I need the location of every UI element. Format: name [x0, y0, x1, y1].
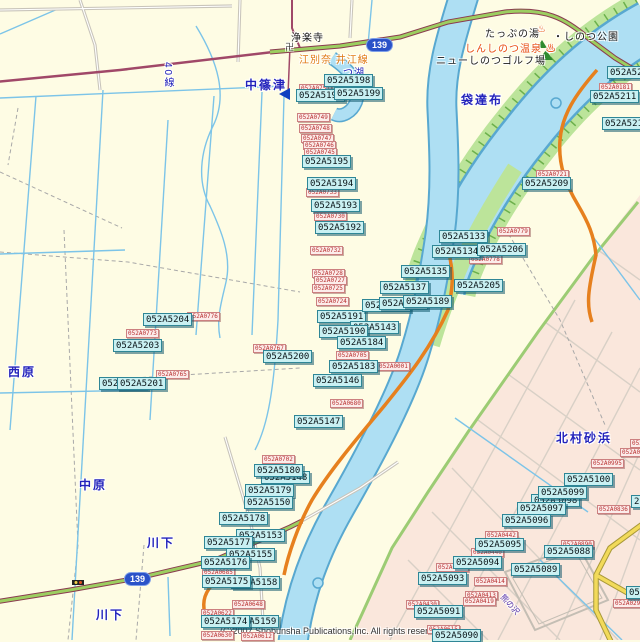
map-text-place: 中篠津 [245, 76, 287, 93]
map-code-label[interactable]: 052A5175 [202, 575, 251, 588]
map-code-label[interactable]: 052A5088 [544, 545, 593, 558]
map-code-label-small[interactable]: 052A0705 [336, 351, 369, 360]
map-text-road: 江別奈 井江線 [299, 51, 369, 66]
map-code-label[interactable]: 052A5184 [337, 336, 386, 349]
map-code-label[interactable]: 052A5099 [538, 486, 587, 499]
map-canvas[interactable]: 中篠津袋達布西原中原川下川下北村砂浜つ湖40線浄楽寺卍江別奈 井江線たっぷの湯♨… [0, 0, 640, 640]
map-code-label[interactable]: 052A5210 [602, 117, 640, 130]
map-code-label[interactable]: 052A5195 [302, 155, 351, 168]
map-code-label[interactable]: 052A5204 [143, 313, 192, 326]
map-code-label[interactable]: 052A5089 [511, 563, 560, 576]
map-text-place: 中原 [79, 476, 107, 493]
map-code-label[interactable]: 052A5087 [626, 586, 640, 599]
map-code-label[interactable]: 052A5194 [307, 177, 356, 190]
route-shield: 139 [366, 38, 393, 52]
map-code-label-small[interactable]: 052A0836 [597, 505, 630, 514]
route-shield: 139 [124, 572, 151, 586]
map-text-poi: たっぷの湯 [485, 25, 540, 40]
map-code-label[interactable]: 052A5134 [432, 245, 481, 258]
map-code-label-small[interactable]: 052A0998 [630, 439, 640, 448]
map-code-label-small[interactable]: 052A0725 [312, 284, 345, 293]
map-text-place: 西原 [8, 363, 36, 380]
map-code-label[interactable]: 052A5093 [418, 572, 467, 585]
map-text-onsen: ♨ [537, 24, 547, 35]
map-code-label[interactable]: 052A5100 [564, 473, 613, 486]
map-code-label[interactable]: 052A5135 [401, 265, 450, 278]
map-code-label[interactable]: 052A5192 [315, 221, 364, 234]
map-code-label-small[interactable]: 052A0996 [620, 448, 640, 457]
map-text-poi: ニューしのつゴルフ場 [436, 52, 546, 67]
map-code-label[interactable]: 052A5178 [219, 512, 268, 525]
map-code-label-small[interactable]: 052A0732 [310, 246, 343, 255]
map-code-label[interactable]: 052A5212 [607, 66, 640, 79]
map-code-label[interactable]: 052A5205 [454, 279, 503, 292]
map-text-place: 川下 [96, 606, 124, 623]
map-code-label[interactable]: 052A5200 [263, 350, 312, 363]
map-code-label-small[interactable]: 052A0702 [262, 455, 295, 464]
map-code-label[interactable]: 052A5091 [414, 605, 463, 618]
signal-icon [72, 580, 84, 585]
map-code-label[interactable]: 052A5137 [380, 281, 429, 294]
map-code-label-small[interactable]: 052A0648 [232, 600, 265, 609]
map-code-label[interactable]: 052A5133 [439, 230, 488, 243]
map-code-label[interactable]: 2 [631, 495, 640, 508]
map-code-label[interactable]: 052A5150 [244, 496, 293, 509]
map-code-label[interactable]: 052A5095 [475, 538, 524, 551]
map-code-label[interactable]: 052A5146 [313, 374, 362, 387]
map-code-label-small[interactable]: 052A0680 [330, 399, 363, 408]
map-text-poi: 浄楽寺 [291, 29, 324, 44]
map-code-label-small[interactable]: 052A0414 [474, 577, 507, 586]
map-text-temple: 卍 [285, 40, 294, 53]
map-code-label-small[interactable]: 052A0773 [126, 329, 159, 338]
map-text-poi: ・しのつ公園 [553, 28, 619, 43]
map-code-label[interactable]: 052A5206 [477, 243, 526, 256]
pond [313, 578, 323, 588]
map-code-label[interactable]: 052A5211 [590, 90, 639, 103]
map-code-label[interactable]: 052A5147 [294, 415, 343, 428]
map-code-label-small[interactable]: 052A0290 [613, 599, 640, 608]
map-code-label[interactable]: 052A5096 [502, 514, 551, 527]
map-code-label[interactable]: 052A5183 [329, 360, 378, 373]
map-code-label-small[interactable]: 052A0724 [316, 297, 349, 306]
map-text-vert: 40線 [160, 62, 175, 89]
map-code-label-small[interactable]: 052A0748 [299, 124, 332, 133]
map-code-label[interactable]: 052A5199 [334, 87, 383, 100]
map-code-label[interactable]: 052A5193 [311, 199, 360, 212]
map-code-label-small[interactable]: 052A0419 [463, 597, 496, 606]
map-text-place: 袋達布 [461, 91, 503, 108]
map-code-label-small[interactable]: 052A0630 [201, 631, 234, 640]
map-code-label-small[interactable]: 052A0779 [497, 227, 530, 236]
map-code-label[interactable]: 052A5189 [403, 295, 452, 308]
map-code-label[interactable]: 052A5176 [201, 556, 250, 569]
map-code-label[interactable]: 052A5203 [113, 339, 162, 352]
map-code-label[interactable]: 052A5201 [117, 377, 166, 390]
map-code-label-small[interactable]: 052A0749 [297, 113, 330, 122]
map-text-place: 北村砂浜 [556, 429, 612, 446]
map-code-label[interactable]: 052A5209 [522, 177, 571, 190]
map-code-label[interactable]: 052A5174 [201, 615, 250, 628]
map-code-label[interactable]: 052A5180 [254, 464, 303, 477]
map-code-label[interactable]: 052A5090 [432, 629, 481, 642]
pond [551, 98, 561, 108]
map-code-label-small[interactable]: 052A0995 [591, 459, 624, 468]
map-code-label[interactable]: 052A5094 [453, 556, 502, 569]
map-text-place: 川下 [147, 534, 175, 551]
map-code-label-small[interactable]: 052A0001 [377, 362, 410, 371]
map-code-label[interactable]: 052A5198 [324, 74, 373, 87]
map-code-label-small[interactable]: 052A0730 [314, 212, 347, 221]
